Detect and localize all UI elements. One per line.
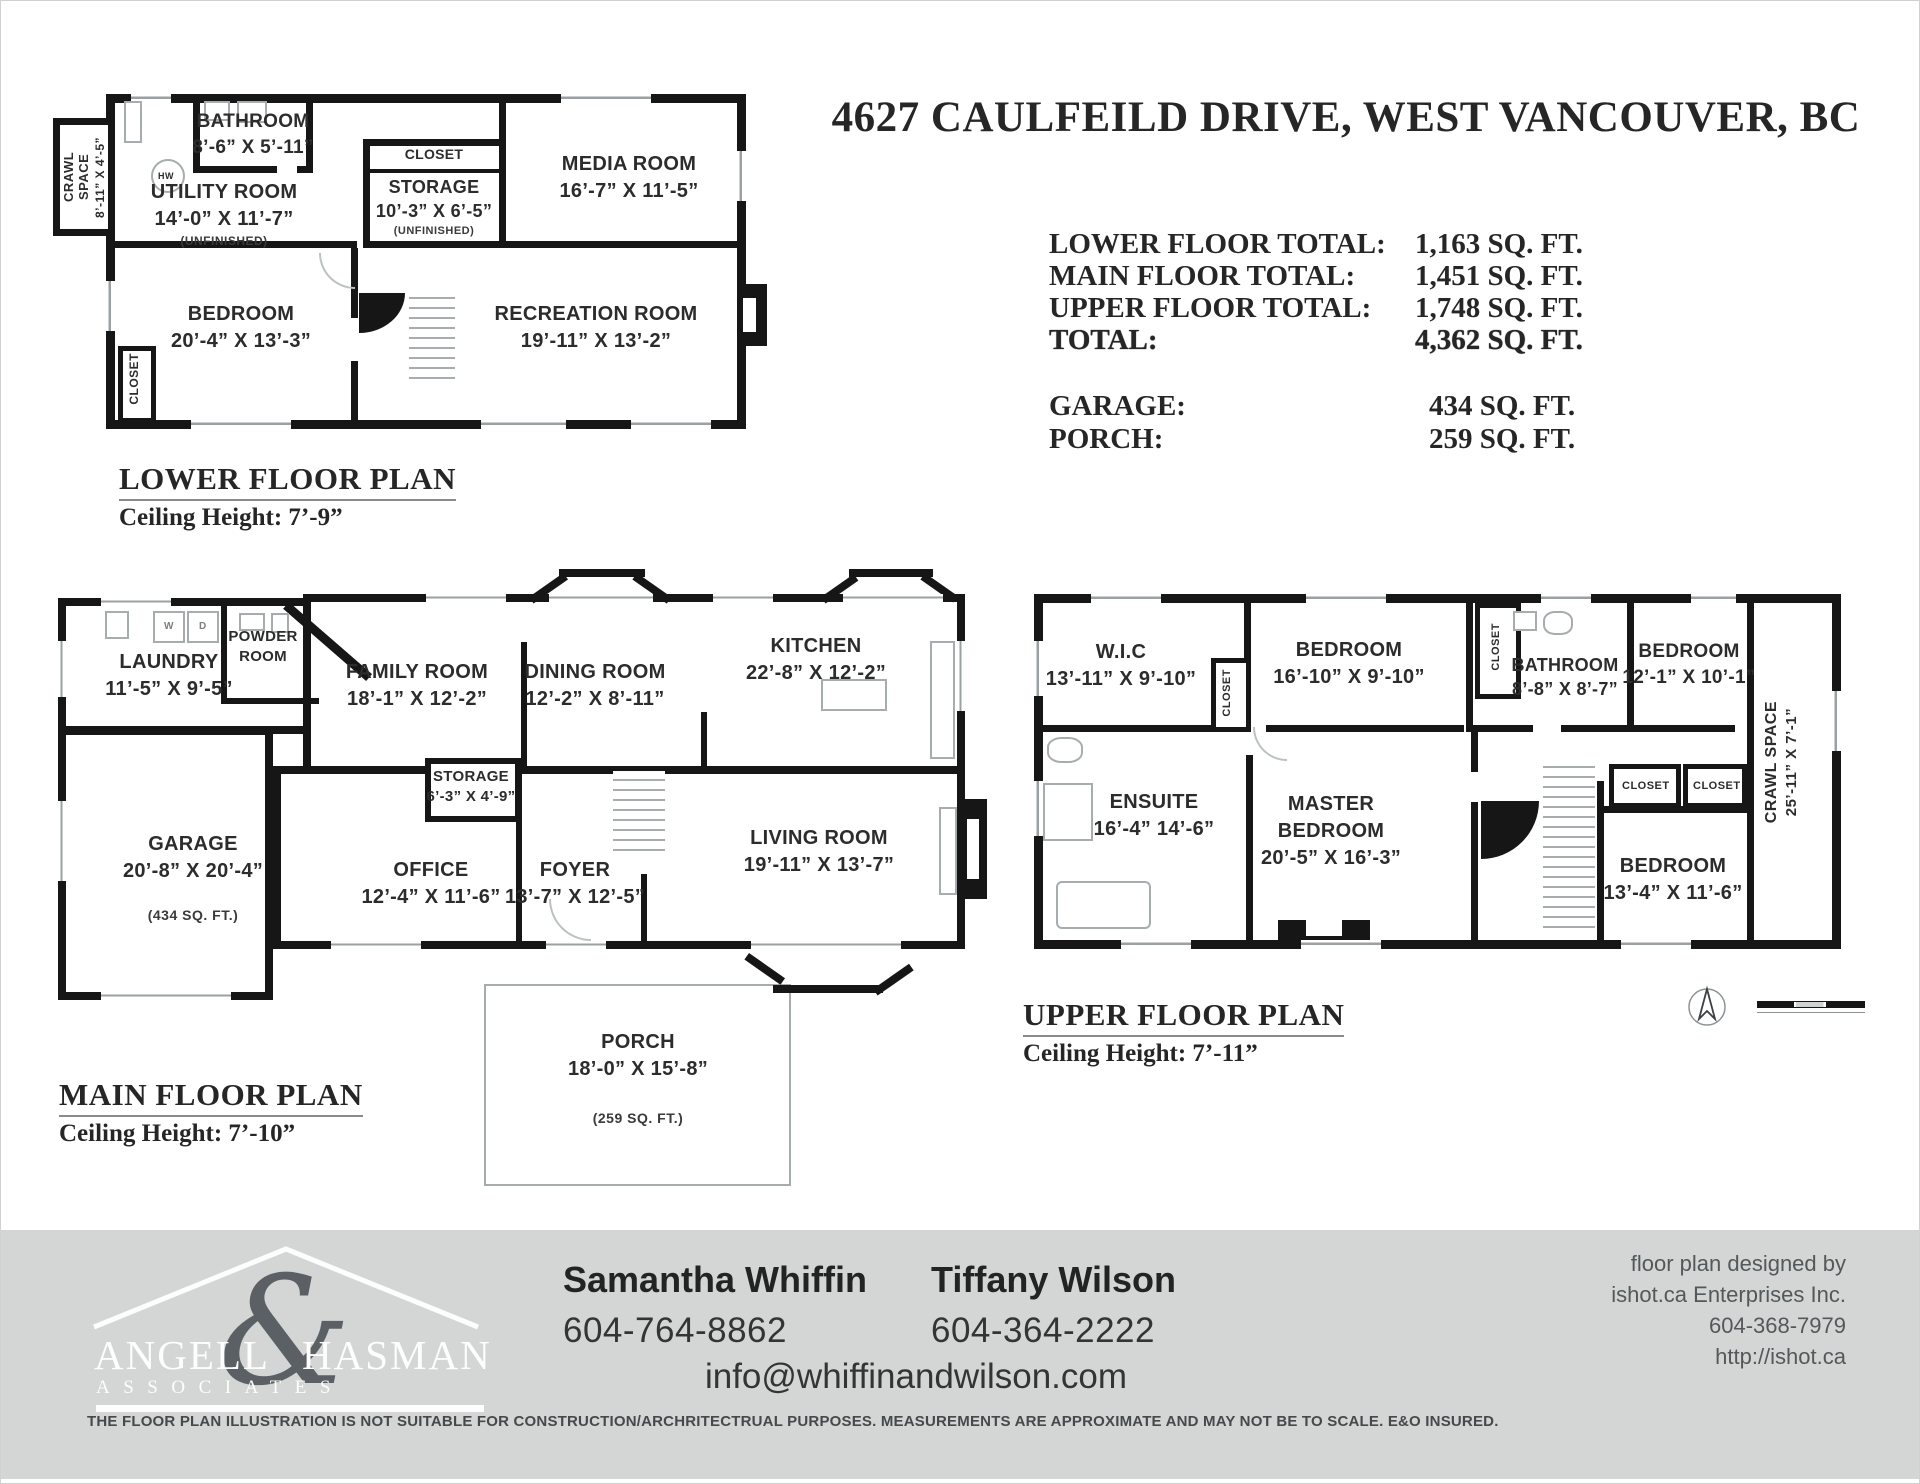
room-name: BEDROOM bbox=[171, 301, 311, 328]
toilet bbox=[1047, 737, 1083, 763]
wall bbox=[363, 241, 506, 248]
kitchen-counter bbox=[930, 641, 955, 759]
room-dims: 13’-7” X 12’-5” bbox=[505, 884, 645, 911]
shower bbox=[1043, 783, 1093, 841]
summary-row: MAIN FLOOR TOTAL: bbox=[1049, 260, 1355, 293]
wall bbox=[1561, 725, 1735, 732]
window bbox=[713, 594, 773, 602]
staircase bbox=[409, 289, 455, 387]
room-name: PORCH bbox=[568, 1029, 708, 1056]
room-note: (259 SQ. FT.) bbox=[593, 1109, 684, 1128]
room-dims: 12’-2” X 8’-11” bbox=[524, 686, 665, 713]
window bbox=[549, 594, 653, 602]
room-master: MASTER BEDROOM 20’-5” X 16’-3” bbox=[1261, 791, 1401, 872]
room-name: CLOSET bbox=[1490, 623, 1502, 671]
room-bedroom2: BEDROOM 12’-1” X 10’-1” bbox=[1622, 639, 1755, 690]
room-dims: 20’-8” X 20’-4” bbox=[123, 858, 263, 885]
window bbox=[1034, 781, 1043, 836]
closet-label: CLOSET bbox=[127, 353, 141, 405]
room-name: LAUNDRY bbox=[105, 649, 233, 676]
wall bbox=[1043, 725, 1226, 732]
window bbox=[106, 281, 115, 331]
wall bbox=[701, 712, 707, 766]
summary-label: TOTAL: bbox=[1049, 324, 1158, 356]
ceiling-height: Ceiling Height: 7’-9” bbox=[119, 504, 456, 532]
room-dims: 16’-10” X 9’-10” bbox=[1273, 664, 1425, 691]
credit-line: ishot.ca Enterprises Inc. bbox=[1481, 1279, 1846, 1310]
room-storage-main: STORAGE 6’-3” X 4’-9” bbox=[427, 767, 516, 808]
fireplace-notch bbox=[967, 819, 979, 879]
utility-fixture bbox=[124, 101, 142, 143]
bay-window-side bbox=[873, 964, 914, 996]
agent-name: Samantha Whiffin bbox=[563, 1259, 867, 1301]
logo-word: ANGELL bbox=[94, 1331, 270, 1379]
room-dims: 25’-11” X 7’-1” bbox=[1783, 701, 1800, 823]
window bbox=[957, 641, 965, 711]
summary-value: 4,362 SQ. FT. bbox=[1415, 324, 1583, 357]
room-porch: PORCH 18’-0” X 15’-8” bbox=[568, 1029, 708, 1083]
summary-label: PORCH: bbox=[1049, 423, 1163, 455]
room-media: MEDIA ROOM 16’-7” X 11’-5” bbox=[559, 151, 698, 205]
window bbox=[58, 641, 66, 697]
room-name: RECREATION ROOM bbox=[494, 301, 697, 328]
window bbox=[843, 594, 943, 602]
floor-name: MAIN FLOOR PLAN bbox=[59, 1077, 363, 1117]
wall bbox=[363, 146, 370, 248]
wall bbox=[1266, 725, 1464, 732]
agent-phone: 604-364-2222 bbox=[931, 1311, 1155, 1351]
wall bbox=[221, 698, 319, 704]
north-arrow-icon bbox=[1685, 985, 1729, 1029]
room-name: BATHROOM bbox=[1511, 653, 1618, 677]
window bbox=[561, 94, 651, 103]
closet-label: CLOSET bbox=[1221, 669, 1233, 717]
room-dims: 16’-7” X 11’-5” bbox=[559, 178, 698, 205]
floor-name: UPPER FLOOR PLAN bbox=[1023, 997, 1344, 1037]
room-dims: 22’-8” X 12’-2” bbox=[746, 660, 886, 687]
wall bbox=[1466, 603, 1473, 732]
summary-row-porch: PORCH: bbox=[1049, 423, 1163, 456]
disclaimer-text: THE FLOOR PLAN ILLUSTRATION IS NOT SUITA… bbox=[87, 1413, 1499, 1430]
closet-label: CLOSET bbox=[1490, 623, 1502, 671]
logo-word: HASMAN bbox=[302, 1331, 492, 1379]
storage-closet-label: CLOSET bbox=[405, 145, 464, 164]
wall bbox=[351, 361, 358, 420]
room-bedroom3: BEDROOM 13’-4” X 11’-6” bbox=[1603, 853, 1742, 907]
room-living: LIVING ROOM 19’-11” X 13’-7” bbox=[744, 825, 894, 879]
bottom-strip bbox=[1, 1479, 1920, 1484]
garage-area-note: (434 SQ. FT.) bbox=[148, 906, 239, 925]
bathtub bbox=[1056, 881, 1151, 929]
agent-name: Tiffany Wilson bbox=[931, 1259, 1176, 1301]
designer-credit: floor plan designed by ishot.ca Enterpri… bbox=[1481, 1248, 1846, 1372]
window bbox=[631, 420, 711, 429]
room-dims: 18’-1” X 12’-2” bbox=[346, 686, 488, 713]
room-dims: 12’-4” X 11’-6” bbox=[361, 884, 500, 911]
dryer-label: D bbox=[199, 621, 207, 632]
room-wic: W.I.C 13’-11” X 9’-10” bbox=[1046, 639, 1196, 693]
room-name: ENSUITE bbox=[1094, 789, 1215, 816]
laundry-sink bbox=[105, 611, 129, 639]
room-name: BEDROOM bbox=[1622, 639, 1755, 665]
porch-area-note: (259 SQ. FT.) bbox=[593, 1109, 684, 1128]
room-dining: DINING ROOM 12’-2” X 8’-11” bbox=[524, 659, 665, 713]
window bbox=[1301, 940, 1381, 949]
washer-label: W bbox=[164, 621, 174, 632]
room-name: STORAGE bbox=[427, 767, 516, 787]
room-dims: 8’-6” X 5’-11” bbox=[192, 135, 313, 161]
room-dims: 18’-0” X 15’-8” bbox=[568, 1056, 708, 1083]
room-name: STORAGE bbox=[376, 175, 492, 199]
window bbox=[737, 151, 746, 201]
credit-line: 604-368-7979 bbox=[1481, 1310, 1846, 1341]
room-recreation: RECREATION ROOM 19’-11” X 13’-2” bbox=[494, 301, 697, 355]
room-dims: 16’-4” 14’-6” bbox=[1094, 816, 1215, 843]
ceiling-height: Ceiling Height: 7’-11” bbox=[1023, 1040, 1344, 1068]
window bbox=[1691, 594, 1736, 603]
room-name: FAMILY ROOM bbox=[346, 659, 488, 686]
room-bedroom-lower: BEDROOM 20’-4” X 13’-3” bbox=[171, 301, 311, 355]
summary-row-garage: GARAGE: bbox=[1049, 390, 1186, 423]
room-dims: 20’-4” X 13’-3” bbox=[171, 328, 311, 355]
closet-label: CLOSET bbox=[1622, 780, 1670, 792]
room-utility: UTILITY ROOM 14’-0” X 11’-7” (UNFINISHED… bbox=[151, 179, 298, 249]
summary-row: UPPER FLOOR TOTAL: bbox=[1049, 292, 1371, 325]
logo-underline bbox=[96, 1405, 484, 1412]
room-note: (UNFINISHED) bbox=[151, 233, 298, 249]
credit-line: floor plan designed by bbox=[1481, 1248, 1846, 1279]
window bbox=[101, 598, 171, 606]
wall bbox=[1473, 725, 1533, 732]
closet-partition bbox=[370, 169, 499, 173]
summary-label: MAIN FLOOR TOTAL: bbox=[1049, 260, 1355, 292]
wall bbox=[297, 166, 313, 173]
garage-door bbox=[101, 992, 231, 1000]
summary-label: GARAGE: bbox=[1049, 390, 1186, 422]
window bbox=[751, 941, 901, 949]
room-dims: 12’-1” X 10’-1” bbox=[1622, 665, 1755, 691]
room-dims: 19’-11” X 13’-2” bbox=[494, 328, 697, 355]
room-name: ROOM bbox=[228, 647, 297, 667]
room-crawl-space: CRAWL SPACE 8’-11” X 4’-5” bbox=[61, 127, 109, 227]
hearth bbox=[939, 807, 957, 895]
room-dims: 8’-8” X 8’-7” bbox=[1511, 677, 1618, 701]
room-dims: 11’-5” X 9’-5” bbox=[105, 676, 233, 703]
staircase bbox=[613, 771, 665, 859]
porch-outline bbox=[484, 984, 791, 1186]
staircase bbox=[1543, 758, 1595, 936]
room-note: (434 SQ. FT.) bbox=[148, 906, 239, 925]
summary-label: UPPER FLOOR TOTAL: bbox=[1049, 292, 1371, 324]
window bbox=[58, 801, 66, 881]
room-name: CLOSET bbox=[1221, 669, 1233, 717]
floor-name: LOWER FLOOR PLAN bbox=[119, 461, 456, 501]
room-bathroom: BATHROOM 8’-6” X 5’-11” bbox=[192, 109, 313, 160]
summary-value: 259 SQ. FT. bbox=[1429, 423, 1575, 456]
bay-window bbox=[849, 569, 933, 577]
room-kitchen: KITCHEN 22’-8” X 12’-2” bbox=[746, 633, 886, 687]
room-dims: 13’-4” X 11’-6” bbox=[1603, 880, 1742, 907]
room-dims: 19’-11” X 13’-7” bbox=[744, 852, 894, 879]
room-bedroom1: BEDROOM 16’-10” X 9’-10” bbox=[1273, 637, 1425, 691]
bay-window bbox=[559, 569, 645, 577]
room-name: BEDROOM bbox=[1603, 853, 1742, 880]
bay-window bbox=[773, 985, 883, 993]
scale-bar bbox=[1757, 1001, 1865, 1008]
wall bbox=[193, 166, 277, 173]
room-name: CLOSET bbox=[405, 145, 464, 164]
bay-window-side bbox=[744, 953, 785, 985]
summary-value: 1,748 SQ. FT. bbox=[1415, 292, 1583, 325]
agent-phone: 604-764-8862 bbox=[563, 1311, 787, 1351]
room-laundry: LAUNDRY 11’-5” X 9’-5” bbox=[105, 649, 233, 703]
room-name: BATHROOM bbox=[192, 109, 313, 135]
room-name: CLOSET bbox=[127, 353, 141, 405]
page-title: 4627 CAULFEILD DRIVE, WEST VANCOUVER, BC bbox=[811, 93, 1881, 142]
toilet bbox=[1543, 611, 1573, 635]
room-dims: 14’-0” X 11’-7” bbox=[151, 206, 298, 233]
agent-email[interactable]: info@whiffinandwilson.com bbox=[631, 1357, 1201, 1397]
window bbox=[1541, 594, 1591, 603]
brokerage-logo: & ANGELL HASMAN ASSOCIATES bbox=[76, 1239, 496, 1409]
room-dims: 8’-11” X 4’-5” bbox=[93, 127, 107, 227]
fireplace-notch bbox=[1306, 920, 1342, 936]
window bbox=[1832, 691, 1841, 751]
room-name: W.I.C bbox=[1046, 639, 1196, 666]
room-dims: 10’-3” X 6’-5” bbox=[376, 199, 492, 223]
room-dims: 13’-11” X 9’-10” bbox=[1046, 666, 1196, 693]
room-name: DINING ROOM bbox=[524, 659, 665, 686]
room-ensuite: ENSUITE 16’-4” 14’-6” bbox=[1094, 789, 1215, 843]
summary-row: LOWER FLOOR TOTAL: bbox=[1049, 228, 1386, 261]
window bbox=[1034, 641, 1043, 696]
room-crawl-upper: CRAWL SPACE 25’-11” X 7’-1” bbox=[1763, 701, 1800, 823]
room-name: POWDER bbox=[228, 627, 297, 647]
room-storage: STORAGE 10’-3” X 6’-5” (UNFINISHED) bbox=[376, 175, 492, 238]
wall bbox=[1246, 755, 1253, 940]
lower-floor-title: LOWER FLOOR PLAN Ceiling Height: 7’-9” bbox=[119, 461, 456, 532]
wall bbox=[1471, 732, 1478, 772]
floor-plan-sheet: 4627 CAULFEILD DRIVE, WEST VANCOUVER, BC… bbox=[0, 0, 1920, 1484]
room-garage: GARAGE 20’-8” X 20’-4” bbox=[123, 831, 263, 885]
window bbox=[191, 420, 291, 429]
room-name: CRAWL SPACE bbox=[1763, 701, 1781, 823]
room-foyer: FOYER 13’-7” X 12’-5” bbox=[505, 857, 645, 911]
room-bathroom-upper: BATHROOM 8’-8” X 8’-7” bbox=[1511, 653, 1618, 702]
window bbox=[481, 420, 566, 429]
logo-subtitle: ASSOCIATES bbox=[96, 1377, 484, 1399]
front-door-opening bbox=[546, 941, 606, 949]
closet-label: CLOSET bbox=[1693, 780, 1741, 792]
room-office: OFFICE 12’-4” X 11’-6” bbox=[361, 857, 500, 911]
room-dims: 20’-5” X 16’-3” bbox=[1261, 845, 1401, 872]
wall bbox=[499, 103, 506, 248]
room-name: GARAGE bbox=[123, 831, 263, 858]
room-name: LIVING ROOM bbox=[744, 825, 894, 852]
fireplace-notch bbox=[743, 298, 756, 332]
summary-value: 1,451 SQ. FT. bbox=[1415, 260, 1583, 293]
room-powder: POWDER ROOM bbox=[228, 627, 297, 668]
credit-line[interactable]: http://ishot.ca bbox=[1481, 1341, 1846, 1372]
room-name: MASTER bbox=[1261, 791, 1401, 818]
summary-value: 434 SQ. FT. bbox=[1429, 390, 1575, 423]
window bbox=[1091, 594, 1161, 603]
room-name: CRAWL SPACE bbox=[61, 127, 91, 227]
wall bbox=[1471, 802, 1478, 940]
bath-sink bbox=[1513, 611, 1537, 631]
room-name: BEDROOM bbox=[1273, 637, 1425, 664]
ceiling-height: Ceiling Height: 7’-10” bbox=[59, 1120, 363, 1148]
main-floor-title: MAIN FLOOR PLAN Ceiling Height: 7’-10” bbox=[59, 1077, 363, 1148]
room-note: (UNFINISHED) bbox=[376, 224, 492, 239]
window bbox=[331, 941, 421, 949]
room-dims: 6’-3” X 4’-9” bbox=[427, 787, 516, 807]
room-name: FOYER bbox=[505, 857, 645, 884]
room-name: OFFICE bbox=[361, 857, 500, 884]
upper-floor-title: UPPER FLOOR PLAN Ceiling Height: 7’-11” bbox=[1023, 997, 1344, 1068]
summary-row-total: TOTAL: bbox=[1049, 324, 1158, 357]
summary-value: 1,163 SQ. FT. bbox=[1415, 228, 1583, 261]
room-name: BEDROOM bbox=[1261, 818, 1401, 845]
room-name: MEDIA ROOM bbox=[559, 151, 698, 178]
window bbox=[426, 594, 506, 602]
window bbox=[1121, 940, 1191, 949]
room-family: FAMILY ROOM 18’-1” X 12’-2” bbox=[346, 659, 488, 713]
window bbox=[1306, 594, 1386, 603]
window bbox=[1621, 940, 1691, 949]
scale-bar-base bbox=[1757, 1010, 1865, 1013]
summary-label: LOWER FLOOR TOTAL: bbox=[1049, 228, 1386, 260]
room-name: UTILITY ROOM bbox=[151, 179, 298, 206]
room-name: KITCHEN bbox=[746, 633, 886, 660]
